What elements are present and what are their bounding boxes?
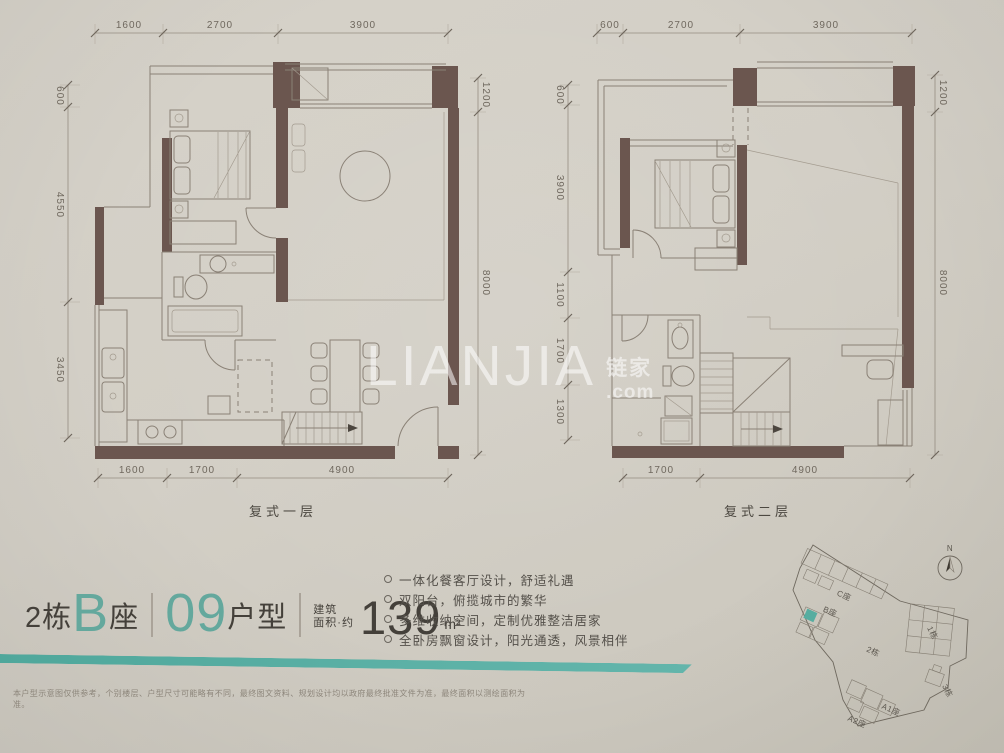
bullet-icon <box>384 635 392 643</box>
disclaimer-text: 本户型示意图仅供参考，个别楼层、户型尺寸可能略有不同，最终图文资料、规划设计均以… <box>13 688 533 710</box>
dim-label: 1700 <box>189 465 215 476</box>
dim-label: 600 <box>54 86 65 106</box>
floor-plan-second: 600 2700 3900 600 3900 1100 1700 1300 12… <box>554 20 948 519</box>
feature-text: 全卧房飘窗设计，阳光通透，风景相伴 <box>399 630 629 649</box>
site-plan: C座 B座 2栋 A1座 A2座 1栋 3栋 <box>793 544 968 730</box>
site-block-c <box>796 548 888 610</box>
dim-label: 3450 <box>54 357 65 383</box>
site-label-1: 1栋 <box>925 624 940 640</box>
block-letter: B <box>72 589 109 639</box>
dim-label: 3900 <box>813 20 839 31</box>
site-label-a2: A2座 <box>846 713 868 730</box>
dim-label: 600 <box>600 20 620 31</box>
highlighted-unit <box>803 609 817 623</box>
feature-text: 双阳台，俯揽城市的繁华 <box>399 590 548 609</box>
kitchen-first <box>99 310 230 444</box>
dining-set-first <box>311 340 379 412</box>
dim-label: 3900 <box>554 175 565 201</box>
walls-second <box>612 66 915 458</box>
dim-label: 3900 <box>350 20 376 31</box>
bullet-icon <box>384 595 392 603</box>
block-suffix: 座 <box>109 604 139 639</box>
dim-label: 1100 <box>554 282 565 308</box>
dim-label: 1300 <box>554 399 565 425</box>
compass-n-label: N <box>947 544 953 553</box>
floor-plan-first: 1600 2700 3900 600 4550 3450 1200 8000 1… <box>54 20 491 519</box>
feature-item: 多维收纳空间，定制优雅整洁居家 <box>384 609 629 629</box>
study-corner-second <box>842 345 903 445</box>
bathroom-second <box>622 315 694 444</box>
dim-label: 4900 <box>792 465 818 476</box>
feature-text: 多维收纳空间，定制优雅整洁居家 <box>399 610 602 629</box>
dim-label: 1700 <box>554 338 565 364</box>
site-label-a1: A1座 <box>880 701 902 718</box>
site-block-3 <box>925 663 947 686</box>
feature-item: 双阳台，俯揽城市的繁华 <box>384 589 629 609</box>
structure-second <box>598 62 912 446</box>
feature-item: 全卧房飘窗设计，阳光通透，风景相伴 <box>384 629 629 649</box>
bedroom-second <box>633 140 737 270</box>
area-label-line1: 建筑 <box>313 604 354 618</box>
bedroom-first <box>170 110 276 244</box>
dim-label: 1600 <box>119 465 145 476</box>
plan-second-label: 复式二层 <box>724 504 792 519</box>
bullet-icon <box>384 615 392 623</box>
dim-label: 1700 <box>648 465 674 476</box>
site-label-3: 3栋 <box>940 682 955 698</box>
dimensions-first: 1600 2700 3900 600 4550 3450 1200 8000 1… <box>54 20 491 488</box>
dim-label: 4550 <box>54 192 65 218</box>
dim-label: 8000 <box>937 270 948 296</box>
area-label-line2: 面积·约 <box>313 617 354 631</box>
dim-label: 4900 <box>329 465 355 476</box>
site-label-2: 2栋 <box>865 644 881 659</box>
feature-text: 一体化餐客厅设计，舒适礼遇 <box>399 570 575 589</box>
feature-list: 一体化餐客厅设计，舒适礼遇 双阳台，俯揽城市的繁华 多维收纳空间，定制优雅整洁居… <box>384 569 629 649</box>
dim-label: 1200 <box>480 82 491 108</box>
dim-label: 1200 <box>937 80 948 106</box>
feature-item: 一体化餐客厅设计，舒适礼遇 <box>384 569 629 589</box>
living-room-first <box>292 124 390 201</box>
plan-first-label: 复式一层 <box>249 504 317 519</box>
building-number: 2栋 <box>25 604 72 639</box>
site-label-c: C座 <box>835 588 853 603</box>
stairs-first <box>282 412 362 444</box>
dim-label: 1600 <box>116 20 142 31</box>
bathroom-first <box>168 255 274 336</box>
dim-label: 2700 <box>207 20 233 31</box>
bullet-icon <box>384 575 392 583</box>
stairs-second <box>700 353 790 446</box>
dim-label: 8000 <box>480 270 491 296</box>
dim-label: 600 <box>554 85 565 105</box>
unit-suffix: 户型 <box>227 604 287 639</box>
dim-label: 2700 <box>668 20 694 31</box>
title-divider <box>151 593 153 637</box>
unit-number: 09 <box>165 589 227 639</box>
site-label-b: B座 <box>822 604 839 619</box>
compass: N <box>938 544 962 580</box>
area-label: 建筑 面积·约 <box>313 604 354 632</box>
title-divider <box>299 593 301 637</box>
